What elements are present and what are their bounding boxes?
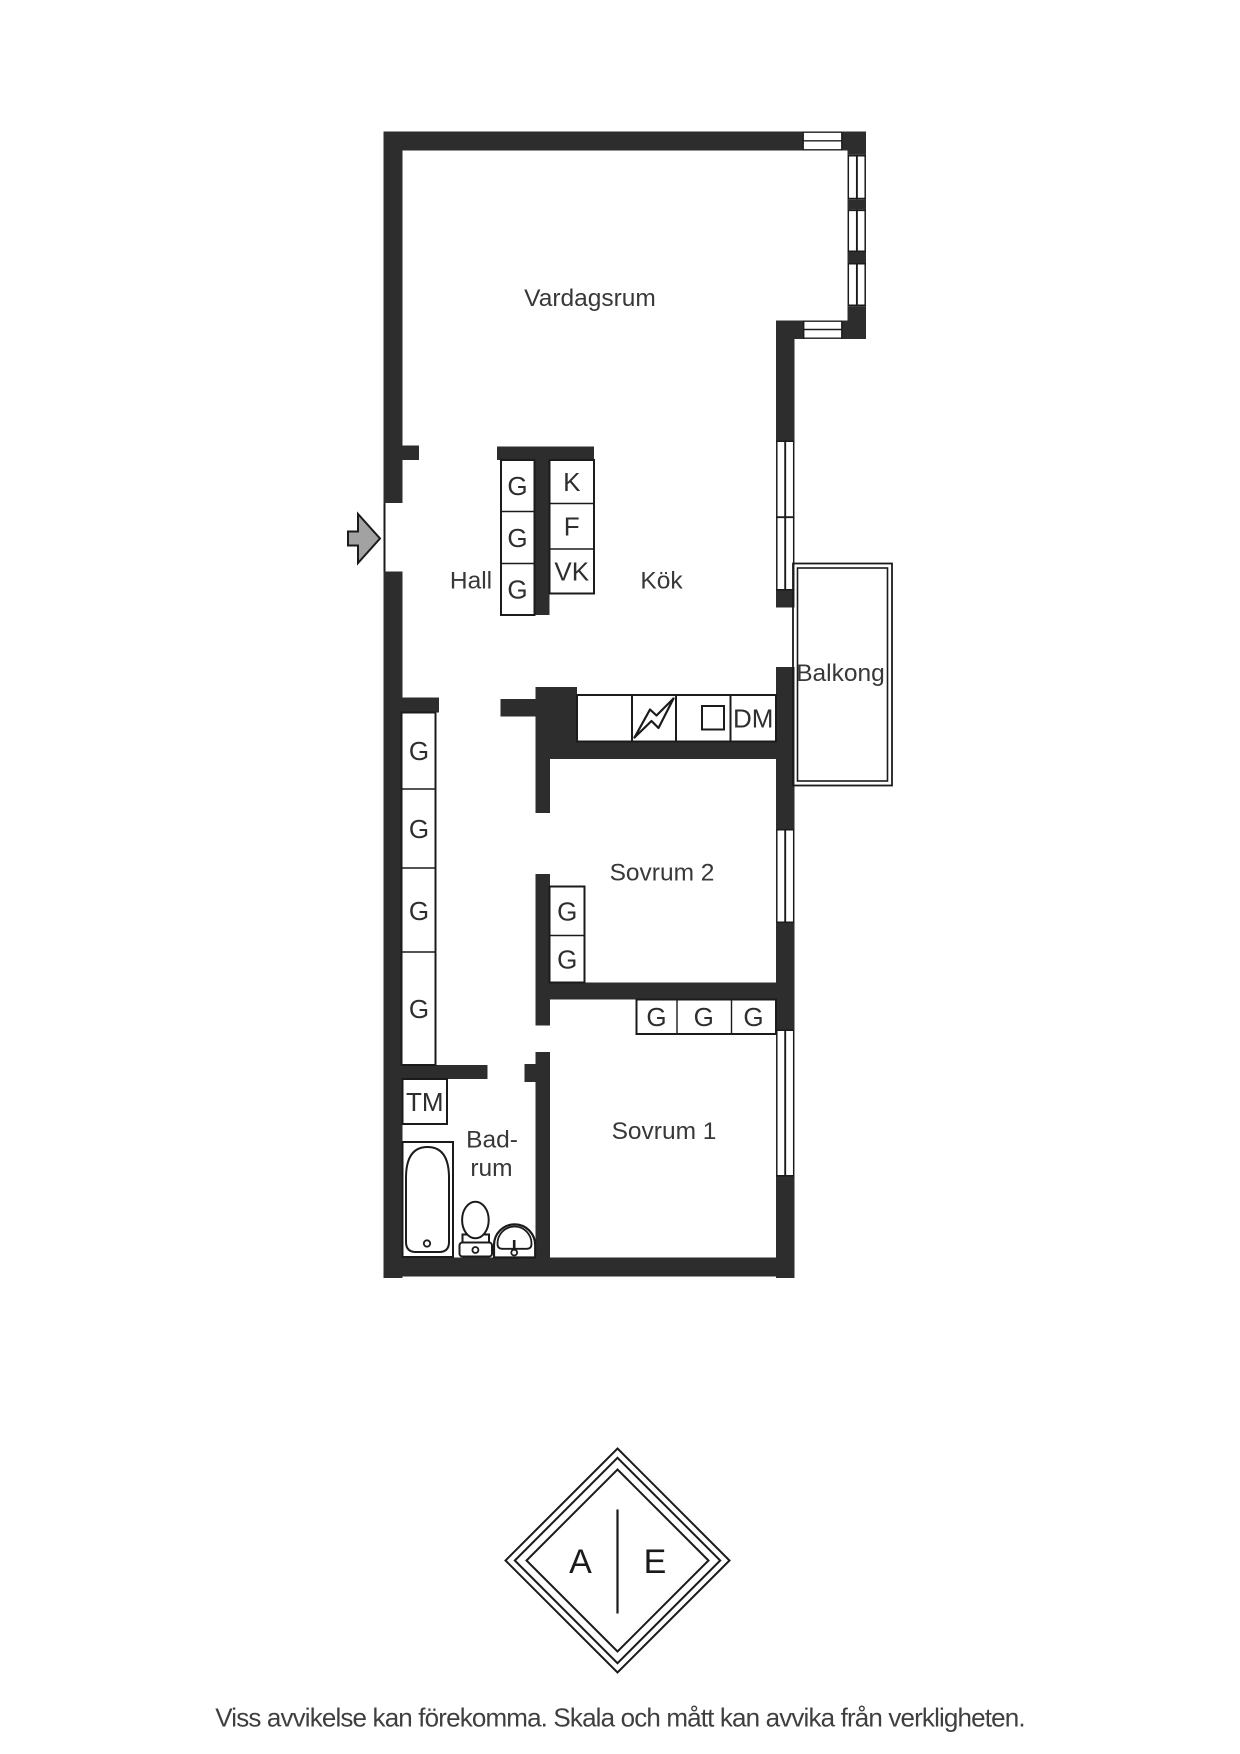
svg-text:Kök: Kök <box>640 568 683 595</box>
svg-text:G: G <box>743 1002 763 1032</box>
svg-text:Vardagsrum: Vardagsrum <box>524 285 656 312</box>
svg-text:VK: VK <box>554 557 589 587</box>
svg-text:F: F <box>564 512 580 542</box>
svg-text:DM: DM <box>733 704 773 734</box>
svg-text:K: K <box>563 467 581 497</box>
svg-text:TM: TM <box>406 1087 444 1117</box>
svg-text:G: G <box>557 945 577 975</box>
svg-text:G: G <box>507 471 527 501</box>
svg-text:G: G <box>409 814 429 844</box>
svg-text:G: G <box>694 1002 714 1032</box>
svg-text:G: G <box>409 896 429 926</box>
svg-text:E: E <box>644 1543 667 1581</box>
svg-text:G: G <box>646 1002 666 1032</box>
svg-text:G: G <box>507 523 527 553</box>
svg-text:Hall: Hall <box>450 568 492 595</box>
svg-text:rum: rum <box>470 1155 512 1182</box>
svg-text:Balkong: Balkong <box>796 660 885 687</box>
svg-text:Bad-: Bad- <box>466 1127 518 1154</box>
svg-text:Viss avvikelse kan förekomma.: Viss avvikelse kan förekomma. Skala och … <box>215 1703 1024 1733</box>
svg-text:G: G <box>557 897 577 927</box>
svg-text:G: G <box>409 736 429 766</box>
svg-text:G: G <box>507 575 527 605</box>
svg-text:G: G <box>409 994 429 1024</box>
svg-text:Sovrum 1: Sovrum 1 <box>612 1118 717 1145</box>
svg-text:Sovrum 2: Sovrum 2 <box>610 860 715 887</box>
svg-text:A: A <box>569 1543 592 1581</box>
